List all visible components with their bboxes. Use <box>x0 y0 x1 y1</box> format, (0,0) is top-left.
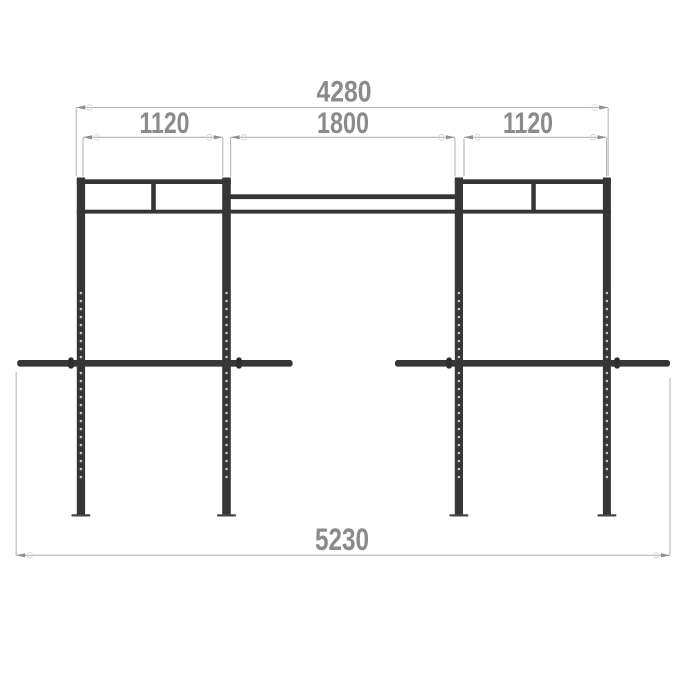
svg-text:1800: 1800 <box>317 107 369 140</box>
svg-text:5230: 5230 <box>315 521 369 557</box>
svg-text:1120: 1120 <box>140 107 190 140</box>
svg-text:1120: 1120 <box>503 107 553 140</box>
svg-text:4280: 4280 <box>317 75 372 108</box>
